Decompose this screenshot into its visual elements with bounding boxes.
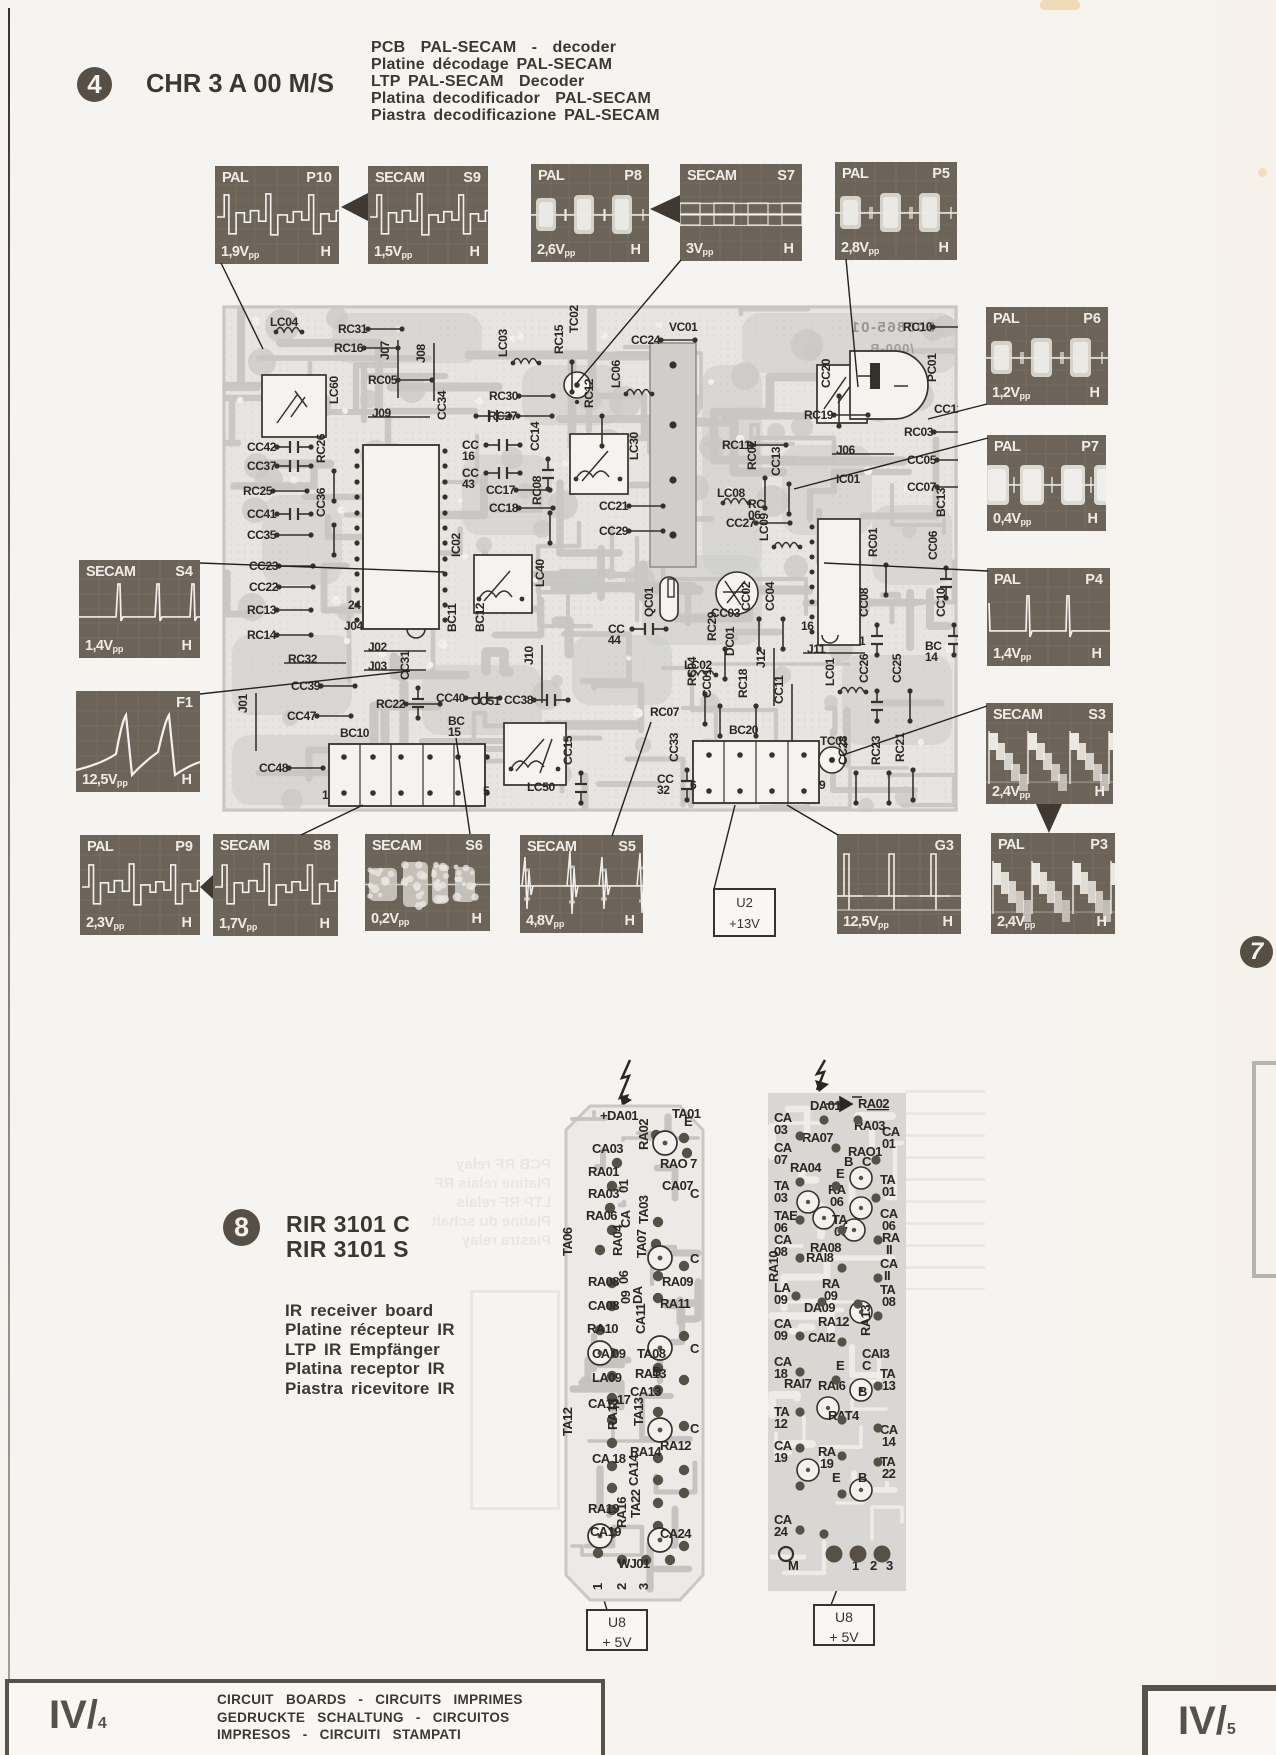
svg-text:J09: J09	[372, 406, 392, 420]
svg-text:CC23: CC23	[249, 559, 279, 573]
svg-text:CC29: CC29	[599, 524, 629, 538]
svg-text:J11: J11	[807, 642, 826, 656]
svg-text:CA 18: CA 18	[592, 1451, 626, 1466]
svg-text:CA07: CA07	[662, 1178, 693, 1193]
svg-text:LC01: LC01	[823, 658, 837, 686]
svg-text:CC08: CC08	[857, 587, 871, 617]
svg-text:RA06: RA06	[586, 1208, 617, 1223]
svg-text:RC14: RC14	[247, 628, 277, 642]
svg-text:RA04: RA04	[790, 1160, 822, 1175]
svg-text:RC30: RC30	[489, 389, 519, 403]
svg-text:CC39: CC39	[291, 679, 321, 693]
svg-text:06: 06	[830, 1194, 844, 1209]
svg-text:RC02: RC02	[745, 440, 759, 470]
svg-text:CC41: CC41	[247, 507, 277, 521]
svg-text:TC02: TC02	[567, 305, 581, 333]
svg-text:RC05: RC05	[368, 373, 398, 387]
svg-text:16: 16	[801, 619, 814, 633]
svg-text:08: 08	[882, 1294, 896, 1309]
svg-text:CC12: CC12	[934, 402, 958, 416]
svg-text:DA01: DA01	[810, 1098, 841, 1113]
svg-text:RC13: RC13	[247, 603, 277, 617]
svg-text:VC01: VC01	[669, 320, 698, 334]
svg-text:+DA01: +DA01	[600, 1108, 638, 1123]
svg-text:3: 3	[636, 1583, 651, 1590]
svg-text:24: 24	[774, 1524, 789, 1539]
svg-text:J08: J08	[414, 343, 428, 363]
svg-text:09: 09	[774, 1328, 788, 1343]
svg-text:E: E	[836, 1166, 845, 1181]
svg-text:BC20: BC20	[729, 723, 759, 737]
svg-text:CC47: CC47	[287, 709, 317, 723]
svg-text:RC32: RC32	[288, 652, 318, 666]
svg-text:RC29: RC29	[705, 611, 719, 641]
svg-text:CC15: CC15	[561, 735, 575, 765]
svg-text:RAO 7: RAO 7	[660, 1156, 697, 1171]
svg-text:CC34: CC34	[435, 390, 449, 420]
svg-text:RA08: RA08	[588, 1274, 619, 1289]
svg-text:DC01: DC01	[723, 626, 737, 656]
svg-text:RA10: RA10	[587, 1321, 618, 1336]
svg-text:07: 07	[774, 1152, 788, 1167]
svg-text:J02: J02	[368, 640, 388, 654]
svg-text:CA08: CA08	[588, 1298, 619, 1313]
svg-text:J12: J12	[754, 648, 768, 668]
svg-text:CC35: CC35	[247, 528, 277, 542]
svg-text:RC12: RC12	[582, 378, 596, 408]
svg-text:CC26: CC26	[857, 653, 871, 683]
svg-text:03: 03	[774, 1122, 788, 1137]
svg-text:B: B	[844, 1154, 853, 1169]
svg-text:BC12: BC12	[473, 602, 487, 632]
svg-text:J10: J10	[522, 645, 536, 665]
svg-text:RC03: RC03	[904, 425, 934, 439]
svg-text:RA07: RA07	[802, 1130, 833, 1145]
svg-text:CC17: CC17	[486, 483, 516, 497]
svg-text:RC04: RC04	[685, 656, 699, 686]
svg-text:RC18: RC18	[736, 668, 750, 698]
svg-text:TA08: TA08	[637, 1346, 666, 1361]
svg-text:RAI7: RAI7	[784, 1376, 812, 1391]
svg-text:RA04: RA04	[610, 1224, 625, 1256]
svg-text:RA18: RA18	[605, 1399, 620, 1430]
svg-text:CA13: CA13	[630, 1384, 661, 1399]
svg-text:TA12: TA12	[560, 1407, 575, 1436]
svg-text:LC09: LC09	[757, 513, 771, 541]
svg-text:IC02: IC02	[449, 533, 463, 557]
svg-text:RC16: RC16	[334, 341, 364, 355]
svg-text:2: 2	[870, 1558, 877, 1573]
svg-text:CA19: CA19	[590, 1524, 621, 1539]
svg-text:RC31: RC31	[338, 322, 368, 336]
svg-text:RC26: RC26	[314, 433, 328, 463]
svg-text:E: E	[836, 1358, 845, 1373]
svg-text:RA09: RA09	[662, 1274, 693, 1289]
svg-text:19: 19	[774, 1450, 788, 1465]
svg-text:RA11: RA11	[660, 1296, 690, 1311]
svg-text:CA14: CA14	[626, 1454, 641, 1486]
svg-text:BC10: BC10	[340, 726, 370, 740]
svg-text:BC13: BC13	[934, 487, 948, 517]
svg-text:LA09: LA09	[592, 1370, 622, 1385]
svg-text:CC05: CC05	[907, 453, 937, 467]
svg-text:LC50: LC50	[527, 780, 555, 794]
svg-text:RC15: RC15	[552, 324, 566, 354]
svg-text:E: E	[832, 1470, 841, 1485]
svg-text:CC25: CC25	[890, 653, 904, 683]
svg-text:RA10: RA10	[766, 1251, 781, 1282]
svg-text:C: C	[862, 1154, 872, 1169]
svg-text:LC08: LC08	[717, 486, 745, 500]
svg-text:LC60: LC60	[327, 376, 341, 404]
svg-text:CC13: CC13	[769, 446, 783, 476]
svg-text:J03: J03	[368, 659, 388, 673]
svg-text:14: 14	[882, 1434, 897, 1449]
svg-text:CC14: CC14	[528, 421, 542, 451]
svg-text:12: 12	[774, 1416, 788, 1431]
svg-text:B: B	[652, 1364, 661, 1379]
svg-text:CA 09: CA 09	[592, 1346, 626, 1361]
svg-text:II: II	[886, 1242, 892, 1257]
svg-text:13: 13	[882, 1378, 896, 1393]
svg-text:LC30: LC30	[627, 432, 641, 460]
svg-text:09: 09	[774, 1292, 788, 1307]
svg-text:CC42: CC42	[247, 440, 277, 454]
svg-text:1: 1	[859, 634, 866, 648]
svg-text:5: 5	[483, 784, 490, 798]
svg-text:RA02: RA02	[636, 1119, 651, 1150]
svg-text:J04: J04	[344, 619, 364, 633]
svg-text:19: 19	[820, 1456, 834, 1471]
svg-text:CC22: CC22	[249, 580, 279, 594]
svg-text:CC20: CC20	[819, 358, 833, 388]
svg-text:WJ01: WJ01	[618, 1556, 650, 1571]
svg-text:CC31: CC31	[398, 650, 412, 680]
svg-text:CC36: CC36	[314, 487, 328, 517]
svg-text:LC40: LC40	[533, 559, 547, 587]
svg-text:06: 06	[616, 1270, 631, 1284]
svg-text:RA12: RA12	[660, 1438, 691, 1453]
svg-text:B: B	[858, 1470, 867, 1485]
svg-text:24: 24	[348, 598, 361, 612]
svg-text:CA11: CA11	[633, 1304, 648, 1334]
svg-text:CC06: CC06	[926, 530, 940, 560]
svg-text:CC11: CC11	[772, 675, 786, 704]
svg-text:CA03: CA03	[592, 1141, 623, 1156]
svg-text:C: C	[862, 1358, 872, 1373]
svg-text:CC27: CC27	[726, 516, 756, 530]
svg-text:CC28: CC28	[836, 735, 850, 765]
svg-text:1: 1	[590, 1583, 605, 1590]
svg-text:CC51: CC51	[471, 694, 501, 708]
svg-text:LC04: LC04	[270, 315, 298, 329]
svg-text:E: E	[684, 1114, 693, 1129]
svg-text:RA13: RA13	[635, 1366, 666, 1381]
svg-text:CA24: CA24	[660, 1526, 692, 1541]
svg-text:CAI2: CAI2	[808, 1330, 836, 1345]
svg-text:QC01: QC01	[642, 587, 656, 617]
svg-text:C: C	[690, 1251, 700, 1266]
svg-text:J01: J01	[236, 693, 250, 713]
svg-text:LC06: LC06	[609, 360, 623, 388]
svg-text:TA03: TA03	[636, 1195, 651, 1224]
svg-text:CC24: CC24	[631, 333, 661, 347]
svg-text:22: 22	[882, 1466, 896, 1481]
svg-text:CC48: CC48	[259, 761, 289, 775]
svg-text:CC10: CC10	[934, 587, 948, 617]
svg-text:9: 9	[819, 778, 826, 792]
svg-text:TA06: TA06	[560, 1227, 575, 1256]
svg-text:CC18: CC18	[489, 501, 519, 515]
svg-text:6: 6	[690, 778, 697, 792]
svg-text:CC33: CC33	[667, 732, 681, 762]
svg-text:RC23: RC23	[869, 735, 883, 765]
svg-text:B: B	[858, 1384, 867, 1399]
svg-text:J07: J07	[378, 340, 392, 360]
svg-text:CC04: CC04	[763, 581, 777, 611]
svg-text:C: C	[690, 1341, 700, 1356]
svg-text:RC19: RC19	[804, 408, 834, 422]
svg-text:CC02: CC02	[739, 581, 753, 611]
svg-text:II: II	[884, 1268, 890, 1283]
svg-text:PC01: PC01	[925, 353, 939, 382]
svg-text:01: 01	[882, 1184, 896, 1199]
svg-text:RC01: RC01	[866, 527, 880, 557]
svg-text:C: C	[690, 1421, 700, 1436]
svg-text:RC21: RC21	[893, 732, 907, 762]
svg-text:DA: DA	[630, 1285, 645, 1304]
svg-text:TA13: TA13	[631, 1397, 646, 1426]
svg-text:BC11: BC11	[445, 603, 459, 632]
svg-text:LC03: LC03	[496, 329, 510, 357]
svg-text:RA12: RA12	[818, 1314, 849, 1329]
svg-text:RC25: RC25	[243, 484, 273, 498]
svg-text:CC38: CC38	[504, 693, 534, 707]
svg-text:CC21: CC21	[599, 499, 629, 513]
svg-text:RC10: RC10	[903, 320, 933, 334]
svg-text:IC01: IC01	[836, 472, 860, 486]
svg-text:RA02: RA02	[858, 1096, 889, 1111]
svg-text:RA13: RA13	[858, 1305, 873, 1336]
svg-text:J06: J06	[836, 443, 856, 457]
svg-text:TA07: TA07	[634, 1229, 649, 1258]
svg-text:01: 01	[616, 1179, 631, 1193]
svg-text:CC07: CC07	[907, 480, 937, 494]
svg-text:CC37: CC37	[247, 459, 277, 473]
svg-text:1: 1	[322, 788, 329, 802]
svg-text:CC01: CC01	[700, 668, 714, 698]
svg-text:RC22: RC22	[376, 697, 406, 711]
svg-text:C: C	[690, 1186, 700, 1201]
svg-text:RA03: RA03	[588, 1186, 619, 1201]
svg-text:RA01: RA01	[588, 1164, 619, 1179]
svg-text:RC08: RC08	[530, 475, 544, 505]
svg-text:2: 2	[614, 1583, 629, 1590]
svg-text:RC27: RC27	[488, 409, 518, 423]
svg-text:03: 03	[774, 1190, 788, 1205]
svg-text:01: 01	[882, 1136, 896, 1151]
svg-text:RAI8: RAI8	[806, 1250, 834, 1265]
svg-text:TA22: TA22	[628, 1489, 643, 1518]
svg-text:CC40: CC40	[436, 691, 466, 705]
svg-text:RC07: RC07	[650, 705, 680, 719]
